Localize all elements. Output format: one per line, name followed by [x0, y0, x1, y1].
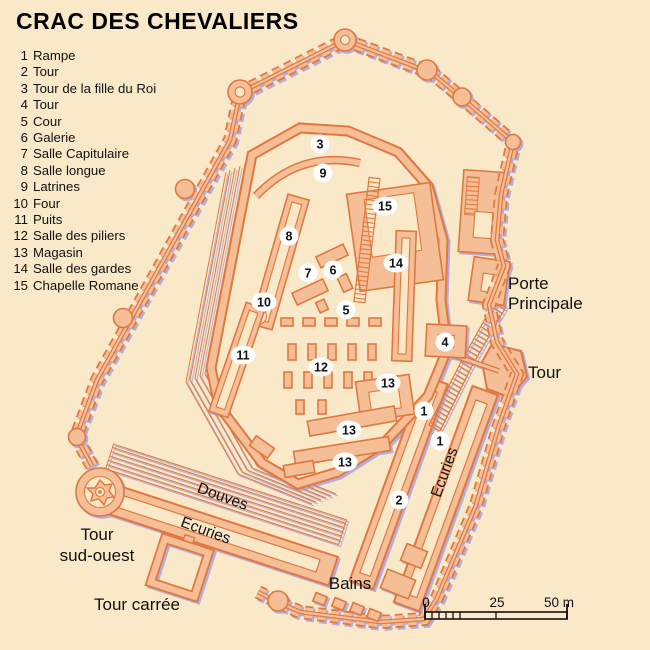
legend-label: Rampe — [33, 48, 76, 63]
marker-number-1: 1 — [437, 435, 444, 449]
marker-number-13: 13 — [338, 456, 352, 470]
legend-label: Galerie — [33, 130, 76, 145]
legend-list: 1Rampe2Tour3Tour de la fille du Roi4Tour… — [6, 48, 156, 294]
legend-number: 6 — [6, 130, 28, 146]
legend-item: 8Salle longue — [6, 163, 156, 179]
marker-number-8: 8 — [286, 230, 293, 244]
legend-label: Cour — [33, 114, 62, 129]
legend-label: Four — [33, 196, 60, 211]
legend-label: Tour — [33, 97, 59, 112]
marker-number-13: 13 — [342, 424, 356, 438]
legend-label: Salle des gardes — [33, 261, 131, 276]
scale-tick-label: 25 — [489, 595, 504, 610]
legend-number: 7 — [6, 146, 28, 162]
legend-label: Salle des piliers — [33, 228, 125, 243]
tower-northeast-2 — [453, 88, 471, 106]
legend-number: 15 — [6, 278, 28, 294]
tower-west-3 — [69, 429, 86, 446]
legend-number: 10 — [6, 196, 28, 212]
map-label: Principale — [508, 294, 583, 313]
legend-item: 14Salle des gardes — [6, 261, 156, 277]
legend-item: 5Cour — [6, 114, 156, 130]
legend-item: 15Chapelle Romane — [6, 278, 156, 294]
legend-item: 2Tour — [6, 64, 156, 80]
map-label: Porte — [508, 274, 549, 293]
tower-northeast-1 — [417, 60, 437, 80]
tower-southwest — [76, 468, 124, 516]
scale-tick-label: 50 m — [544, 595, 574, 610]
marker-number-13: 13 — [381, 377, 395, 391]
marker-number-14: 14 — [389, 257, 403, 271]
legend-number: 11 — [6, 212, 28, 228]
map-label: Tour carrée — [94, 595, 180, 614]
legend-label: Tour — [33, 64, 59, 79]
legend-item: 9Latrines — [6, 179, 156, 195]
legend-label: Tour de la fille du Roi — [33, 81, 156, 96]
legend-number: 13 — [6, 245, 28, 261]
legend-item: 6Galerie — [6, 130, 156, 146]
legend-label: Latrines — [33, 179, 80, 194]
legend-number: 9 — [6, 179, 28, 195]
legend-label: Magasin — [33, 245, 83, 260]
legend-item: 7Salle Capitulaire — [6, 146, 156, 162]
legend-number: 1 — [6, 48, 28, 64]
tower-west-2 — [114, 309, 133, 328]
tower-west-1 — [176, 180, 195, 199]
marker-number-12: 12 — [314, 361, 328, 375]
tower-east-corner — [506, 135, 521, 150]
marker-number-2: 2 — [396, 494, 403, 508]
marker-number-10: 10 — [257, 296, 271, 310]
map-label: Tour — [528, 363, 561, 382]
legend-label: Chapelle Romane — [33, 278, 139, 293]
marker-number-7: 7 — [305, 267, 312, 281]
legend-number: 5 — [6, 114, 28, 130]
legend-item: 3Tour de la fille du Roi — [6, 81, 156, 97]
page-title: CRAC DES CHEVALIERS — [16, 8, 299, 35]
legend-item: 13Magasin — [6, 245, 156, 261]
legend-label: Salle longue — [33, 163, 106, 178]
marker-number-9: 9 — [320, 167, 327, 181]
legend-label: Salle Capitulaire — [33, 146, 129, 161]
legend-item: 4Tour — [6, 97, 156, 113]
marker-number-6: 6 — [330, 264, 337, 278]
marker-number-15: 15 — [378, 200, 392, 214]
marker-number-3: 3 — [317, 138, 324, 152]
legend-item: 10Four — [6, 196, 156, 212]
legend-item: 12Salle des piliers — [6, 228, 156, 244]
legend-number: 8 — [6, 163, 28, 179]
marker-number-11: 11 — [236, 349, 249, 363]
marker-number-4: 4 — [442, 336, 449, 350]
scale-bar: 02550 m — [422, 595, 574, 620]
legend-number: 12 — [6, 228, 28, 244]
map-label: sud-ouest — [60, 546, 135, 565]
legend-number: 2 — [6, 64, 28, 80]
legend-number: 3 — [6, 81, 28, 97]
scale-tick-label: 0 — [422, 595, 430, 610]
castle-plan-page: 39158146710541112131131132 PortePrincipa… — [0, 0, 650, 650]
marker-number-5: 5 — [343, 304, 350, 318]
map-label: Tour — [80, 525, 113, 544]
legend-item: 1Rampe — [6, 48, 156, 64]
legend-label: Puits — [33, 212, 62, 227]
legend-item: 11Puits — [6, 212, 156, 228]
marker-number-1: 1 — [421, 405, 428, 419]
legend-number: 4 — [6, 97, 28, 113]
tower-south — [268, 591, 288, 611]
map-label: Bains — [329, 574, 372, 593]
legend-number: 14 — [6, 261, 28, 277]
